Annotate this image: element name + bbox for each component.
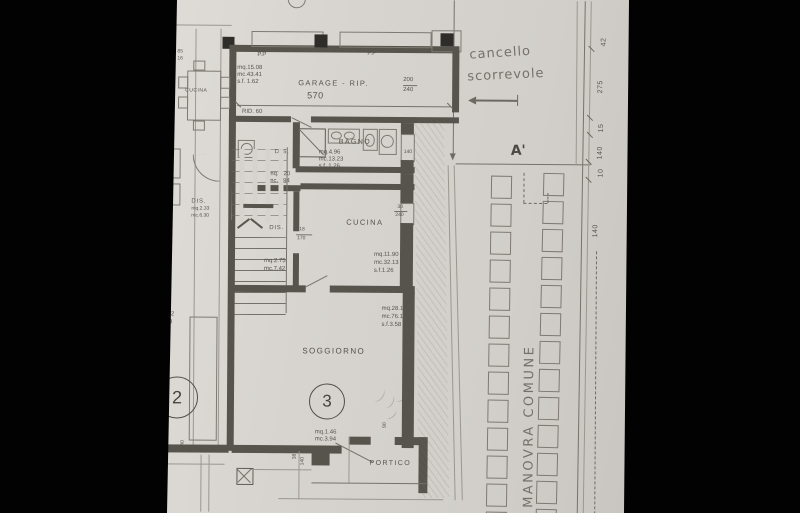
garage-south-wall-left (229, 116, 291, 122)
bagno-mc: mc.13.23 (319, 156, 344, 162)
unit2-yard-line (163, 463, 225, 464)
cucina-window-h: 240 (395, 213, 403, 218)
step-dim-top: 18 (299, 227, 305, 232)
path-edge-line (454, 165, 463, 500)
cucina-mc: mc.32.13 (374, 260, 399, 266)
cucina-east-wall-b (400, 223, 413, 292)
cucina-north-wall (300, 183, 414, 190)
unit2-corner-dim-b: 16 (177, 56, 183, 61)
parking-square (489, 288, 510, 311)
door-arc (193, 155, 220, 182)
cancello-note-line2: scorrevole (467, 67, 545, 84)
parking-square (541, 257, 563, 280)
rid-note: RID. 60 (242, 109, 262, 115)
portico-label: PORTICO (370, 460, 412, 468)
garage-sf: s.f. 1.62 (237, 79, 258, 85)
pillar (314, 34, 327, 47)
dis2-label: DIS. (269, 225, 284, 231)
neighbor-boundary-line (170, 24, 232, 25)
parking-column-left (485, 176, 512, 513)
garage-mq: mq.15.08 (237, 65, 262, 71)
bagno-east-wall-a (401, 123, 414, 134)
parking-square (487, 428, 508, 451)
dis2-cucina-wall-b (293, 253, 299, 287)
parking-square (539, 341, 561, 364)
pencil-scribble (384, 407, 398, 421)
parking-square (537, 453, 559, 476)
unit2-cucina-label: CUCINA (185, 88, 207, 93)
gate-arrowhead-icon (450, 153, 456, 160)
section-marker-a: A' (511, 144, 527, 159)
bagno-label: BAGNO (339, 139, 371, 147)
parking-square (540, 285, 562, 308)
dis2-cucina-wall-a (293, 191, 299, 231)
cancello-arrow-line (475, 100, 517, 102)
cancello-arrowhead-icon (468, 96, 476, 104)
chair (220, 77, 230, 89)
cucina-east-wall-a (400, 174, 413, 203)
garage-label: GARAGE - RIP. (298, 79, 369, 87)
portico-mq: mq.1.46 (315, 429, 337, 435)
soggiorno-north-wall-left (233, 285, 306, 293)
garage-dim-line (237, 105, 451, 107)
garage-door-height: 240 (403, 87, 413, 93)
manovra-note: MANOVRA COMUNE (522, 296, 537, 508)
boiler-circle (381, 135, 394, 148)
bagno-window-dim: 140 (404, 150, 412, 155)
bagno-south-wall (296, 166, 415, 173)
garage-door-width: 200 (403, 77, 413, 83)
chair (193, 61, 205, 71)
bagno-mq: mq.4.96 (319, 149, 341, 155)
unit3-number: 3 (322, 391, 332, 411)
portico-mc: mc.3.94 (315, 436, 336, 442)
parking-square (491, 176, 512, 199)
cancello-arrow-tick (517, 95, 518, 106)
right-dim-42: 42 (600, 38, 607, 47)
parking-square (543, 173, 565, 196)
parking-square (487, 400, 508, 423)
door-leaf-line (306, 275, 328, 287)
parking-square (488, 372, 509, 395)
portico-south-line (311, 482, 426, 484)
parking-square (540, 313, 562, 336)
closet (189, 317, 218, 441)
yard-line (252, 469, 312, 470)
pillar-label: P.P (257, 52, 266, 58)
unit2-dis-label: DIS. (191, 199, 206, 205)
unit2-dis-mq: mq.2.33 (191, 207, 209, 212)
soggiorno-label: SOGGIORNO (302, 347, 365, 356)
dis2-mc: mc.7.42 (264, 266, 285, 272)
portico-door-dim: 90 (383, 422, 388, 428)
parking-square (538, 369, 560, 392)
dis2-mq: mq.2.75 (264, 258, 286, 264)
portico-dim-b: 140 (301, 457, 306, 465)
stair-landing-bar (243, 204, 273, 208)
fraction-line (403, 85, 417, 86)
gravel-hatch-band (414, 120, 449, 498)
pillar-label: P.P (367, 51, 376, 57)
cucina-window-w: 30 (397, 205, 403, 210)
garage-width-dim: 570 (307, 91, 324, 101)
unit2-corner-dim-a: 85 (177, 49, 183, 54)
parking-square (488, 344, 509, 367)
parking-square (490, 232, 511, 255)
photo-black-bar-left (0, 0, 182, 513)
cancello-note-line1: cancello (469, 45, 531, 62)
portico-north-wall-a (349, 437, 371, 445)
chair (220, 97, 230, 109)
bagno-east-wall-b (401, 160, 414, 174)
garage-parapet-right (339, 32, 431, 49)
section-cut-line (523, 173, 524, 203)
parking-square (489, 260, 510, 283)
portico-dim-a: 38 (293, 454, 298, 460)
cucina-label: CUCINA (346, 219, 383, 227)
portico-step-block (312, 451, 330, 465)
stairs-lower-flight (231, 237, 287, 315)
unit2-dis-mc: mc.6.30 (191, 214, 209, 219)
cucina-sf: s.f.1.26 (374, 268, 394, 274)
dim-tick (587, 132, 593, 138)
parking-top-line (456, 163, 591, 165)
parking-square (490, 204, 511, 227)
parking-square (535, 509, 557, 513)
parking-square (486, 456, 507, 479)
chair (178, 96, 188, 108)
right-dim-275: 275 (597, 80, 604, 93)
floorplan-photo: P.P P.P GARAGE - RIP. 570 mq.15.08 mc.43… (0, 0, 800, 513)
parking-square (542, 229, 564, 252)
soggiorno-sf: s.f.3.58 (381, 322, 401, 328)
unit3-number-circle: 3 (309, 383, 345, 419)
ground-line (278, 498, 443, 500)
photo-black-bar-right (618, 0, 800, 513)
parking-square (486, 484, 507, 507)
right-dim-140a: 140 (597, 146, 604, 159)
site-boundary-dashed (594, 251, 597, 513)
garage-parapet-left (251, 31, 323, 48)
chair (193, 121, 205, 131)
parking-square (489, 316, 510, 339)
dining-table (187, 71, 221, 121)
right-dim-15: 15 (598, 124, 605, 133)
parking-square (542, 201, 564, 224)
right-dim-140b: 140 (592, 224, 599, 237)
stairs-upper-flight (231, 149, 287, 223)
parking-square (537, 425, 559, 448)
right-dim-10: 10 (598, 169, 605, 178)
garage-mc: mc.43.41 (237, 72, 262, 78)
cucina-mq: mq.11.90 (374, 252, 399, 258)
parking-corner-line (576, 1, 578, 165)
garage-right-wall (452, 46, 459, 112)
unit2-number: 2 (172, 387, 182, 408)
unit2-south-wall (163, 444, 229, 452)
parking-column-right (535, 173, 564, 513)
parking-square (536, 481, 558, 504)
portico-west-line (348, 437, 349, 483)
step-dim-bottom: 170 (297, 236, 305, 241)
top-circle-symbol (288, 0, 306, 8)
parking-square (538, 397, 560, 420)
soggiorno-east-wall (402, 292, 415, 448)
